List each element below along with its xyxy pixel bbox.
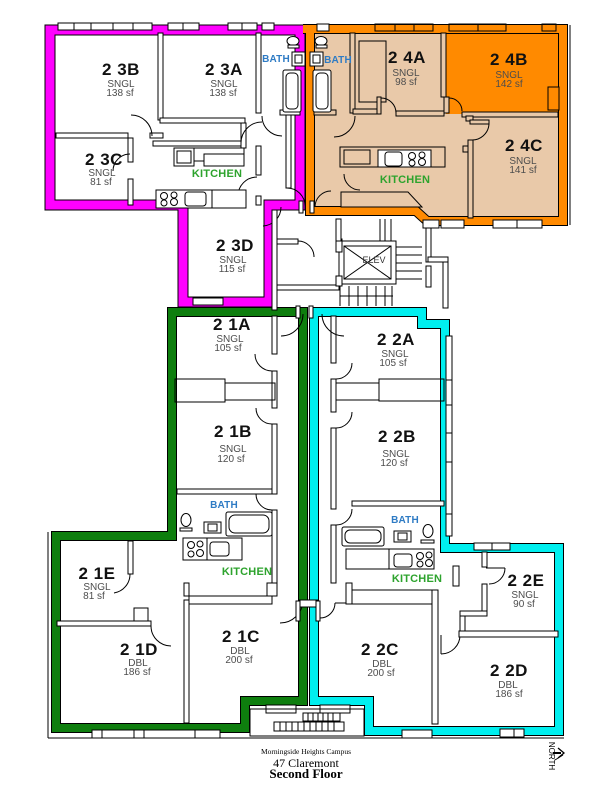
svg-text:120 sf: 120 sf bbox=[217, 454, 244, 465]
svg-text:2 2B: 2 2B bbox=[378, 427, 416, 446]
svg-text:2 2E: 2 2E bbox=[508, 571, 545, 590]
svg-text:186 sf: 186 sf bbox=[495, 689, 522, 700]
svg-text:105 sf: 105 sf bbox=[214, 343, 241, 354]
svg-text:200 sf: 200 sf bbox=[367, 668, 394, 679]
svg-text:Morningside Heights Campus: Morningside Heights Campus bbox=[261, 747, 351, 756]
svg-text:81 sf: 81 sf bbox=[90, 177, 112, 188]
svg-text:142 sf: 142 sf bbox=[495, 79, 522, 90]
svg-text:2 2C: 2 2C bbox=[361, 640, 399, 659]
svg-text:98 sf: 98 sf bbox=[395, 77, 417, 88]
svg-text:115 sf: 115 sf bbox=[219, 264, 246, 275]
svg-text:2 1B: 2 1B bbox=[214, 422, 252, 441]
svg-text:2 3B: 2 3B bbox=[102, 60, 140, 79]
svg-text:KITCHEN: KITCHEN bbox=[392, 573, 442, 585]
svg-text:2 3D: 2 3D bbox=[216, 236, 254, 255]
svg-text:2 1D: 2 1D bbox=[120, 640, 158, 659]
svg-text:KITCHEN: KITCHEN bbox=[192, 168, 242, 180]
svg-text:NORTH: NORTH bbox=[547, 742, 556, 771]
svg-text:Second Floor: Second Floor bbox=[269, 766, 343, 781]
svg-text:KITCHEN: KITCHEN bbox=[380, 174, 430, 186]
svg-text:2 1E: 2 1E bbox=[79, 564, 116, 583]
svg-text:BATH: BATH bbox=[262, 54, 290, 65]
svg-text:186 sf: 186 sf bbox=[123, 667, 150, 678]
svg-text:2 4B: 2 4B bbox=[490, 50, 528, 69]
svg-text:KITCHEN: KITCHEN bbox=[222, 566, 272, 578]
svg-text:141 sf: 141 sf bbox=[509, 165, 536, 176]
svg-text:120 sf: 120 sf bbox=[380, 458, 407, 469]
svg-text:138 sf: 138 sf bbox=[106, 88, 133, 99]
svg-text:ELEV: ELEV bbox=[362, 255, 385, 265]
svg-text:138 sf: 138 sf bbox=[209, 88, 236, 99]
svg-text:2 3A: 2 3A bbox=[205, 60, 243, 79]
svg-text:2 1A: 2 1A bbox=[213, 315, 251, 334]
svg-text:BATH: BATH bbox=[324, 55, 352, 66]
svg-text:2 1C: 2 1C bbox=[222, 627, 260, 646]
svg-text:81 sf: 81 sf bbox=[83, 591, 105, 602]
svg-text:BATH: BATH bbox=[391, 515, 419, 526]
svg-text:2 3C: 2 3C bbox=[85, 150, 123, 169]
svg-text:200 sf: 200 sf bbox=[225, 655, 252, 666]
svg-text:BATH: BATH bbox=[210, 500, 238, 511]
svg-text:2 4A: 2 4A bbox=[388, 48, 426, 67]
svg-text:90 sf: 90 sf bbox=[513, 599, 535, 610]
svg-text:105 sf: 105 sf bbox=[379, 358, 406, 369]
svg-text:2 4C: 2 4C bbox=[505, 136, 543, 155]
svg-text:2 2D: 2 2D bbox=[490, 661, 528, 680]
svg-text:2 2A: 2 2A bbox=[377, 330, 415, 349]
